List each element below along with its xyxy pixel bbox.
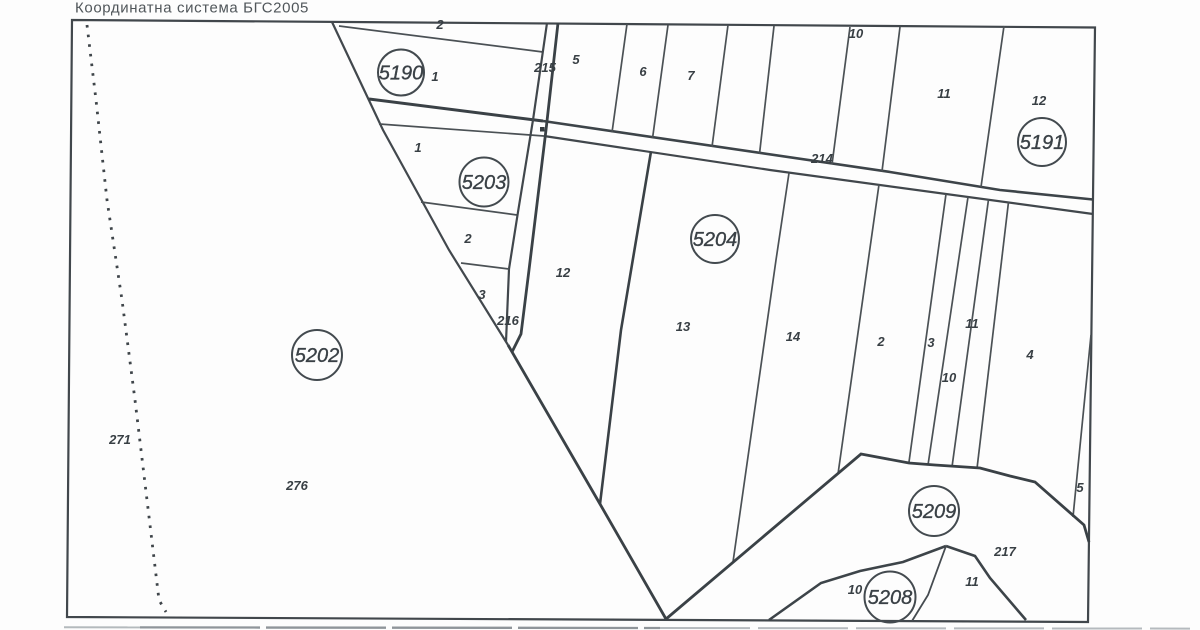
svg-text:5: 5: [572, 52, 580, 67]
svg-text:1: 1: [431, 69, 438, 84]
svg-text:5191: 5191: [1020, 132, 1065, 154]
svg-text:12: 12: [1032, 93, 1047, 108]
svg-text:5202: 5202: [295, 345, 340, 367]
svg-text:215: 215: [533, 60, 556, 75]
svg-text:Координатна система БГС2005: Координатна система БГС2005: [75, 0, 309, 17]
svg-text:5209: 5209: [912, 501, 957, 523]
svg-text:5: 5: [1076, 480, 1084, 495]
svg-text:3: 3: [927, 335, 935, 350]
svg-text:11: 11: [965, 574, 979, 589]
svg-text:7: 7: [687, 68, 695, 83]
svg-text:2: 2: [435, 17, 444, 32]
svg-text:271: 271: [108, 432, 131, 447]
svg-text:2: 2: [876, 334, 885, 349]
svg-text:5203: 5203: [462, 172, 507, 194]
svg-text:3: 3: [478, 287, 486, 302]
svg-text:10: 10: [849, 26, 864, 41]
svg-text:14: 14: [786, 329, 801, 344]
svg-text:10: 10: [848, 582, 863, 597]
svg-text:10: 10: [942, 370, 957, 385]
svg-text:11: 11: [965, 316, 979, 331]
svg-text:5204: 5204: [693, 229, 738, 251]
svg-text:12: 12: [556, 265, 571, 280]
svg-text:5208: 5208: [868, 587, 913, 609]
svg-text:5190: 5190: [379, 63, 424, 85]
svg-text:276: 276: [285, 478, 308, 493]
svg-text:11: 11: [937, 86, 951, 101]
svg-text:13: 13: [676, 319, 691, 334]
svg-text:2: 2: [463, 231, 472, 246]
svg-text:216: 216: [496, 313, 519, 328]
svg-text:4: 4: [1025, 347, 1034, 362]
svg-text:1: 1: [414, 140, 421, 155]
svg-text:214: 214: [810, 151, 833, 166]
svg-text:217: 217: [993, 544, 1016, 559]
svg-text:6: 6: [639, 64, 647, 79]
